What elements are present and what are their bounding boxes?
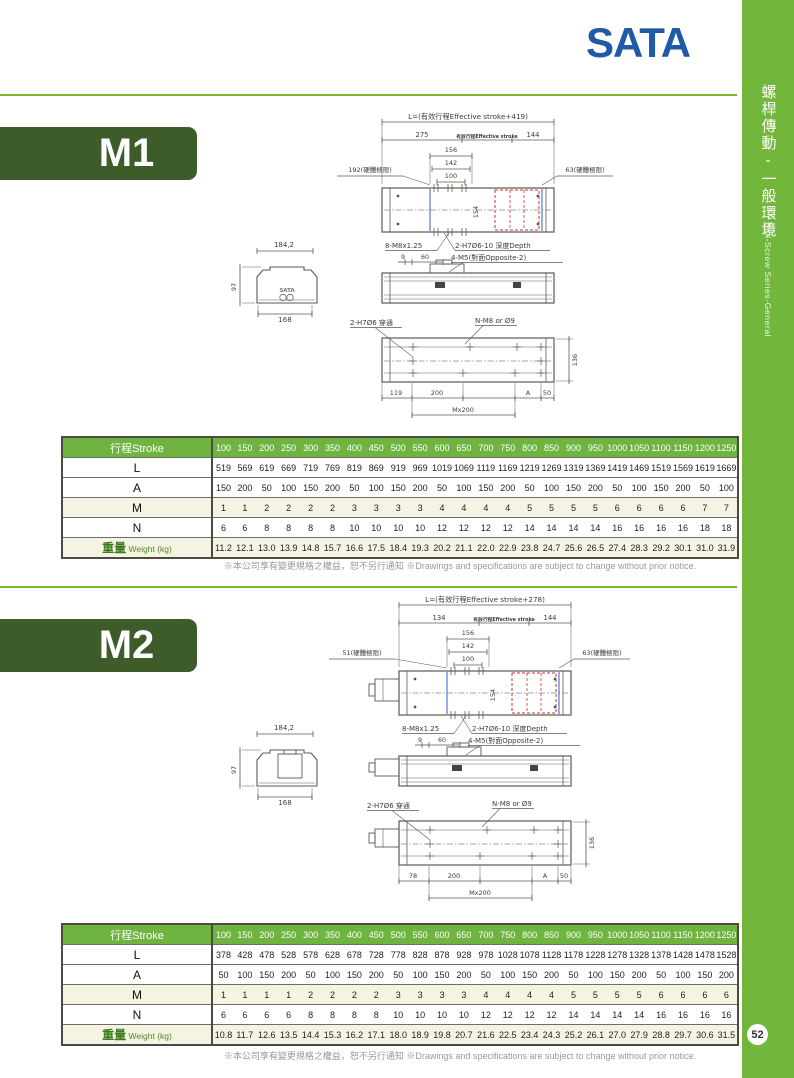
spec-cell: 3: [365, 498, 387, 518]
dim-label: 156: [445, 146, 457, 154]
dim-label: 136: [571, 354, 579, 366]
spec-cell: 150: [694, 965, 716, 985]
page-number-badge: 52: [747, 1024, 768, 1045]
spec-cell: 1569: [672, 458, 694, 478]
spec-cell: 16: [628, 518, 650, 538]
spec-cell: 14: [606, 1005, 628, 1025]
spec-row-M: M112222333344445555666677: [62, 498, 738, 518]
spec-cell: 2: [365, 985, 387, 1005]
dim-label: 144: [544, 614, 557, 622]
dim-label: 144: [527, 131, 540, 139]
spec-cell: 24.3: [541, 1025, 563, 1046]
spec-cell: 150: [212, 478, 234, 498]
spec-cell: 14: [541, 518, 563, 538]
spec-cell: 100: [672, 965, 694, 985]
spec-cell: 6: [628, 498, 650, 518]
row-label: M: [62, 985, 212, 1005]
stroke-header-cell: 500: [387, 924, 409, 945]
dim-label: 60: [421, 254, 429, 261]
dim-label: 100: [462, 655, 474, 663]
series-title-cn: 螺桿傳動-一般環境: [758, 84, 779, 239]
dim-label: A: [543, 872, 548, 880]
spec-cell: 1: [234, 985, 256, 1005]
spec-cell: 10.8: [212, 1025, 234, 1046]
spec-cell: 1069: [453, 458, 475, 478]
spec-cell: 12.1: [234, 538, 256, 559]
spec-cell: 6: [278, 1005, 300, 1025]
stroke-header-cell: 1200: [694, 437, 716, 458]
spec-cell: 1: [278, 985, 300, 1005]
m2-banner: M2: [0, 619, 197, 672]
stroke-header-cell: 1250: [716, 924, 738, 945]
spec-cell: 31.5: [716, 1025, 738, 1046]
spec-cell: 27.9: [628, 1025, 650, 1046]
spec-cell: 22.5: [497, 1025, 519, 1046]
spec-cell: 978: [475, 945, 497, 965]
dim-label: 142: [445, 159, 457, 167]
stroke-header-cell: 300: [300, 437, 322, 458]
spec-cell: 100: [278, 478, 300, 498]
stroke-header-cell: 1050: [628, 924, 650, 945]
spec-cell: 1528: [716, 945, 738, 965]
stroke-header-cell: 1150: [672, 437, 694, 458]
row-label: L: [62, 945, 212, 965]
spec-cell: 16: [672, 518, 694, 538]
spec-cell: 6: [256, 1005, 278, 1025]
spec-cell: 18: [716, 518, 738, 538]
spec-cell: 6: [212, 518, 234, 538]
spec-cell: 15.7: [322, 538, 344, 559]
spec-cell: 719: [300, 458, 322, 478]
stroke-header-cell: 1050: [628, 437, 650, 458]
spec-cell: 29.7: [672, 1025, 694, 1046]
dim-label: Mx200: [452, 406, 474, 414]
dim-label: 168: [278, 799, 291, 807]
spec-cell: 11.7: [234, 1025, 256, 1046]
spec-cell: 50: [300, 965, 322, 985]
m1-drawing-svg: 154L=(有效行程Effective stroke+419)275有效行程Ef…: [225, 110, 745, 432]
spec-cell: 50: [519, 478, 541, 498]
stroke-header-cell: 700: [475, 437, 497, 458]
spec-cell: 200: [322, 478, 344, 498]
spec-cell: 200: [584, 478, 606, 498]
spec-cell: 1: [256, 985, 278, 1005]
row-label-weight: 重量 Weight (kg): [62, 1025, 212, 1046]
m2-technical-drawing: 154L=(有效行程Effective stroke+278)134有效行程Ef…: [225, 593, 745, 915]
spec-cell: 12: [431, 518, 453, 538]
spec-cell: 8: [300, 518, 322, 538]
spec-cell: 23.4: [519, 1025, 541, 1046]
dim-label: 2-H7Ø6-10 深度Depth: [455, 241, 531, 250]
m2-drawing-svg: 154L=(有效行程Effective stroke+278)134有效行程Ef…: [225, 593, 745, 915]
sata-logo: SATA: [586, 22, 690, 64]
stroke-header-cell: 850: [541, 437, 563, 458]
stroke-header-row: 行程Stroke10015020025030035040045050055060…: [62, 437, 738, 458]
section-brand-mark: SATA: [279, 288, 295, 294]
stroke-header-cell: 150: [234, 924, 256, 945]
dim-label: Mx200: [469, 889, 491, 897]
dim-label: 8-M8x1.25: [402, 725, 439, 733]
stroke-header-cell: 200: [256, 924, 278, 945]
spec-cell: 30.6: [694, 1025, 716, 1046]
spec-cell: 200: [453, 965, 475, 985]
row-label: A: [62, 478, 212, 498]
spec-cell: 4: [497, 498, 519, 518]
stroke-header-row: 行程Stroke10015020025030035040045050055060…: [62, 924, 738, 945]
spec-cell: 31.9: [716, 538, 738, 559]
spec-cell: 27.4: [606, 538, 628, 559]
spec-cell: 12: [541, 1005, 563, 1025]
spec-cell: 24.7: [541, 538, 563, 559]
spec-cell: 25.6: [563, 538, 585, 559]
stroke-header-cell: 1150: [672, 924, 694, 945]
spec-cell: 50: [387, 965, 409, 985]
spec-cell: 100: [497, 965, 519, 985]
spec-cell: 50: [650, 965, 672, 985]
spec-cell: 5: [584, 985, 606, 1005]
spec-cell: 200: [541, 965, 563, 985]
spec-cell: 7: [694, 498, 716, 518]
spec-cell: 1328: [628, 945, 650, 965]
spec-cell: 4: [497, 985, 519, 1005]
spec-cell: 10: [431, 1005, 453, 1025]
spec-cell: 478: [256, 945, 278, 965]
dim-label: 有效行程Effective stroke: [473, 616, 535, 623]
spec-cell: 1478: [694, 945, 716, 965]
spec-cell: 16: [650, 1005, 672, 1025]
spec-cell: 14.4: [300, 1025, 322, 1046]
stroke-header-cell: 1000: [606, 437, 628, 458]
stroke-header-cell: 900: [563, 437, 585, 458]
spec-cell: 26.1: [584, 1025, 606, 1046]
spec-row-weight: 重量 Weight (kg)10.811.712.613.514.415.316…: [62, 1025, 738, 1046]
spec-cell: 16: [716, 1005, 738, 1025]
dim-label: 200: [448, 872, 460, 880]
spec-cell: 728: [365, 945, 387, 965]
stroke-header-cell: 1200: [694, 924, 716, 945]
weight-label-cn: 重量: [102, 541, 126, 555]
dim-label: 275: [416, 131, 429, 139]
spec-cell: 919: [387, 458, 409, 478]
spec-cell: 22.0: [475, 538, 497, 559]
spec-cell: 6: [234, 1005, 256, 1025]
spec-cell: 528: [278, 945, 300, 965]
stroke-header-cell: 200: [256, 437, 278, 458]
spec-cell: 628: [322, 945, 344, 965]
spec-cell: 1219: [519, 458, 541, 478]
spec-cell: 150: [563, 478, 585, 498]
spec-cell: 200: [672, 478, 694, 498]
spec-cell: 928: [453, 945, 475, 965]
stroke-header-cell: 700: [475, 924, 497, 945]
spec-row-N: N668888101010101212121214141414161616161…: [62, 518, 738, 538]
spec-cell: 6: [650, 985, 672, 1005]
spec-cell: 1278: [606, 945, 628, 965]
dim-label: 63(硬體極限): [582, 648, 621, 657]
spec-row-A: A150200501001502005010015020050100150200…: [62, 478, 738, 498]
spec-cell: 14: [519, 518, 541, 538]
spec-cell: 6: [716, 985, 738, 1005]
spec-cell: 18.0: [387, 1025, 409, 1046]
spec-cell: 28.8: [650, 1025, 672, 1046]
m2-spec-table: 行程Stroke10015020025030035040045050055060…: [61, 923, 739, 1046]
spec-cell: 12: [497, 518, 519, 538]
spec-cell: 1228: [584, 945, 606, 965]
m1-spec-table: 行程Stroke10015020025030035040045050055060…: [61, 436, 739, 559]
spec-cell: 1019: [431, 458, 453, 478]
spec-cell: 8: [300, 1005, 322, 1025]
stroke-header-cell: 950: [584, 437, 606, 458]
spec-cell: 100: [628, 478, 650, 498]
spec-cell: 150: [475, 478, 497, 498]
spec-cell: 14: [584, 518, 606, 538]
spec-cell: 16.6: [343, 538, 365, 559]
spec-cell: 100: [234, 965, 256, 985]
stroke-header-cell: 1000: [606, 924, 628, 945]
spec-cell: 1: [212, 985, 234, 1005]
spec-cell: 50: [563, 965, 585, 985]
m1-banner: M1: [0, 127, 197, 180]
dim-label: 97: [230, 766, 238, 774]
spec-cell: 8: [365, 1005, 387, 1025]
spec-cell: 1178: [563, 945, 585, 965]
spec-cell: 200: [628, 965, 650, 985]
spec-cell: 10: [365, 518, 387, 538]
stroke-header-cell: 450: [365, 437, 387, 458]
dim-label: L=(有效行程Effective stroke+278): [425, 595, 545, 604]
spec-cell: 14: [584, 1005, 606, 1025]
dim-label: 154: [489, 689, 497, 701]
spec-cell: 12: [497, 1005, 519, 1025]
spec-cell: 2: [300, 498, 322, 518]
spec-cell: 1: [212, 498, 234, 518]
spec-cell: 200: [365, 965, 387, 985]
stroke-header-cell: 350: [322, 437, 344, 458]
weight-label-cn: 重量: [102, 1028, 126, 1042]
spec-cell: 19.3: [409, 538, 431, 559]
spec-cell: 15.3: [322, 1025, 344, 1046]
spec-cell: 1428: [672, 945, 694, 965]
spec-cell: 12: [475, 518, 497, 538]
m2-table: 行程Stroke10015020025030035040045050055060…: [61, 923, 739, 1046]
stroke-header-cell: 650: [453, 924, 475, 945]
spec-cell: 4: [453, 498, 475, 518]
dim-label: 8-M8x1.25: [385, 242, 422, 250]
spec-cell: 878: [431, 945, 453, 965]
spec-row-N: N666688881010101012121212141414141616161…: [62, 1005, 738, 1025]
spec-cell: 31.0: [694, 538, 716, 559]
spec-cell: 26.5: [584, 538, 606, 559]
row-label: N: [62, 1005, 212, 1025]
spec-cell: 50: [606, 478, 628, 498]
row-label: A: [62, 965, 212, 985]
spec-cell: 8: [343, 1005, 365, 1025]
spec-cell: 29.2: [650, 538, 672, 559]
spec-cell: 6: [672, 985, 694, 1005]
stroke-header-cell: 900: [563, 924, 585, 945]
spec-cell: 13.9: [278, 538, 300, 559]
spec-cell: 150: [606, 965, 628, 985]
spec-cell: 50: [343, 478, 365, 498]
spec-cell: 5: [541, 498, 563, 518]
spec-cell: 150: [256, 965, 278, 985]
spec-cell: 50: [212, 965, 234, 985]
spec-cell: 6: [234, 518, 256, 538]
spec-cell: 10: [409, 518, 431, 538]
stroke-header-cell: 400: [343, 437, 365, 458]
spec-cell: 100: [409, 965, 431, 985]
dim-label: A: [526, 389, 531, 397]
spec-cell: 20.2: [431, 538, 453, 559]
spec-cell: 5: [606, 985, 628, 1005]
dim-label: N-M8 or Ø9: [492, 800, 532, 808]
dim-label: 4-M5(對面Opposite-2): [451, 253, 527, 262]
m1-technical-drawing: 154L=(有效行程Effective stroke+419)275有效行程Ef…: [225, 110, 745, 432]
stroke-header-cell: 750: [497, 924, 519, 945]
stroke-header-label: 行程Stroke: [62, 437, 212, 458]
spec-cell: 21.1: [453, 538, 475, 559]
stroke-header-cell: 600: [431, 437, 453, 458]
spec-cell: 20.7: [453, 1025, 475, 1046]
m2-banner-label: M2: [99, 623, 155, 668]
spec-cell: 18.4: [387, 538, 409, 559]
spec-row-L: L378428478528578628678728778828878928978…: [62, 945, 738, 965]
dim-label: 2-H7Ø6-10 深度Depth: [472, 724, 548, 733]
spec-cell: 13.0: [256, 538, 278, 559]
spec-cell: 14: [628, 1005, 650, 1025]
weight-label-en: Weight (kg): [126, 1031, 172, 1041]
spec-cell: 378: [212, 945, 234, 965]
spec-cell: 18.9: [409, 1025, 431, 1046]
spec-cell: 1419: [606, 458, 628, 478]
stroke-header-cell: 950: [584, 924, 606, 945]
spec-cell: 3: [431, 985, 453, 1005]
spec-cell: 6: [650, 498, 672, 518]
spec-cell: 1269: [541, 458, 563, 478]
spec-cell: 6: [212, 1005, 234, 1025]
spec-cell: 4: [541, 985, 563, 1005]
dim-label: 184,2: [274, 241, 294, 249]
spec-cell: 6: [694, 985, 716, 1005]
spec-cell: 1128: [541, 945, 563, 965]
spec-cell: 1169: [497, 458, 519, 478]
spec-cell: 12: [519, 1005, 541, 1025]
spec-cell: 200: [409, 478, 431, 498]
dim-label: 119: [390, 389, 402, 397]
m1-table: 行程Stroke10015020025030035040045050055060…: [61, 436, 739, 559]
spec-cell: 5: [563, 498, 585, 518]
spec-cell: 200: [497, 478, 519, 498]
dim-label: 63(硬體極限): [565, 165, 604, 174]
spec-cell: 5: [519, 498, 541, 518]
spec-cell: 22.9: [497, 538, 519, 559]
spec-cell: 12.6: [256, 1025, 278, 1046]
stroke-header-cell: 250: [278, 437, 300, 458]
spec-cell: 10: [409, 1005, 431, 1025]
spec-cell: 10: [453, 1005, 475, 1025]
spec-cell: 10: [343, 518, 365, 538]
spec-cell: 11.2: [212, 538, 234, 559]
dim-label: 154: [472, 206, 480, 218]
spec-cell: 12: [453, 518, 475, 538]
weight-label-en: Weight (kg): [126, 544, 172, 554]
series-title-en: Ball-Screw Series-General: [763, 222, 773, 337]
dim-label: 156: [462, 629, 474, 637]
top-divider: [0, 94, 737, 96]
spec-cell: 869: [365, 458, 387, 478]
spec-cell: 6: [672, 498, 694, 518]
spec-cell: 150: [343, 965, 365, 985]
spec-cell: 100: [541, 478, 563, 498]
spec-cell: 519: [212, 458, 234, 478]
spec-cell: 200: [278, 965, 300, 985]
section-divider: [0, 586, 737, 588]
spec-cell: 17.5: [365, 538, 387, 559]
dim-label: N-M8 or Ø9: [475, 317, 515, 325]
spec-cell: 50: [475, 965, 497, 985]
spec-cell: 7: [716, 498, 738, 518]
spec-cell: 23.8: [519, 538, 541, 559]
spec-cell: 2: [278, 498, 300, 518]
spec-cell: 1369: [584, 458, 606, 478]
spec-cell: 578: [300, 945, 322, 965]
m1-footnote: ※本公司享有變更規格之權益，恕不另行通知 ※Drawings and speci…: [200, 559, 720, 572]
spec-cell: 100: [716, 478, 738, 498]
spec-cell: 5: [584, 498, 606, 518]
m1-banner-label: M1: [99, 131, 155, 176]
stroke-header-cell: 350: [322, 924, 344, 945]
dim-label: 有效行程Effective stroke: [456, 133, 518, 140]
row-label: L: [62, 458, 212, 478]
spec-cell: 2: [322, 498, 344, 518]
stroke-header-cell: 100: [212, 924, 234, 945]
spec-cell: 150: [519, 965, 541, 985]
spec-cell: 16: [650, 518, 672, 538]
stroke-header-cell: 1250: [716, 437, 738, 458]
stroke-header-cell: 250: [278, 924, 300, 945]
spec-cell: 678: [343, 945, 365, 965]
stroke-header-cell: 300: [300, 924, 322, 945]
dim-label: 2-H7Ø6 穿通: [367, 801, 410, 810]
spec-cell: 3: [409, 498, 431, 518]
spec-cell: 200: [234, 478, 256, 498]
dim-label: 9: [401, 254, 405, 261]
stroke-header-cell: 450: [365, 924, 387, 945]
spec-cell: 1469: [628, 458, 650, 478]
spec-cell: 1078: [519, 945, 541, 965]
spec-cell: 619: [256, 458, 278, 478]
dim-label: 50: [560, 872, 568, 880]
spec-cell: 150: [650, 478, 672, 498]
spec-cell: 100: [584, 965, 606, 985]
spec-cell: 50: [694, 478, 716, 498]
spec-cell: 3: [387, 498, 409, 518]
spec-cell: 3: [387, 985, 409, 1005]
spec-row-weight: 重量 Weight (kg)11.212.113.013.914.815.716…: [62, 538, 738, 559]
spec-cell: 100: [453, 478, 475, 498]
spec-cell: 200: [716, 965, 738, 985]
dim-label: L=(有效行程Effective stroke+419): [408, 112, 528, 121]
dim-label: 78: [409, 872, 417, 880]
spec-cell: 3: [409, 985, 431, 1005]
spec-row-M: M111122223333444455556666: [62, 985, 738, 1005]
spec-cell: 969: [409, 458, 431, 478]
dim-label: 200: [431, 389, 443, 397]
spec-cell: 2: [343, 985, 365, 1005]
spec-cell: 14: [563, 518, 585, 538]
spec-cell: 819: [343, 458, 365, 478]
spec-cell: 18: [694, 518, 716, 538]
